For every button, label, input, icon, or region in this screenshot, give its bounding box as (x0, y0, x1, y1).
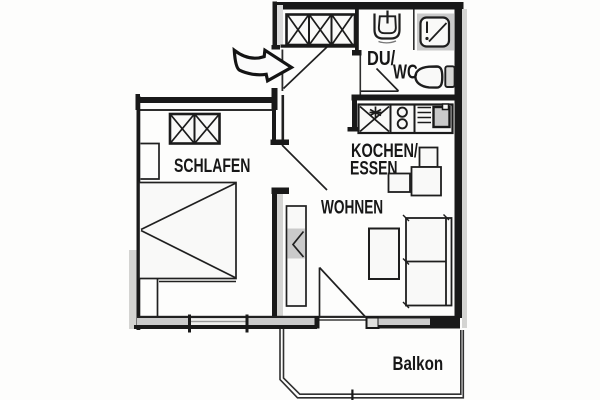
svg-text:SCHLAFEN: SCHLAFEN (174, 155, 250, 177)
svg-text:DU/: DU/ (367, 46, 395, 69)
svg-text:WC: WC (393, 60, 418, 83)
svg-text:WOHNEN: WOHNEN (321, 196, 383, 218)
svg-text:Balkon: Balkon (393, 352, 444, 374)
